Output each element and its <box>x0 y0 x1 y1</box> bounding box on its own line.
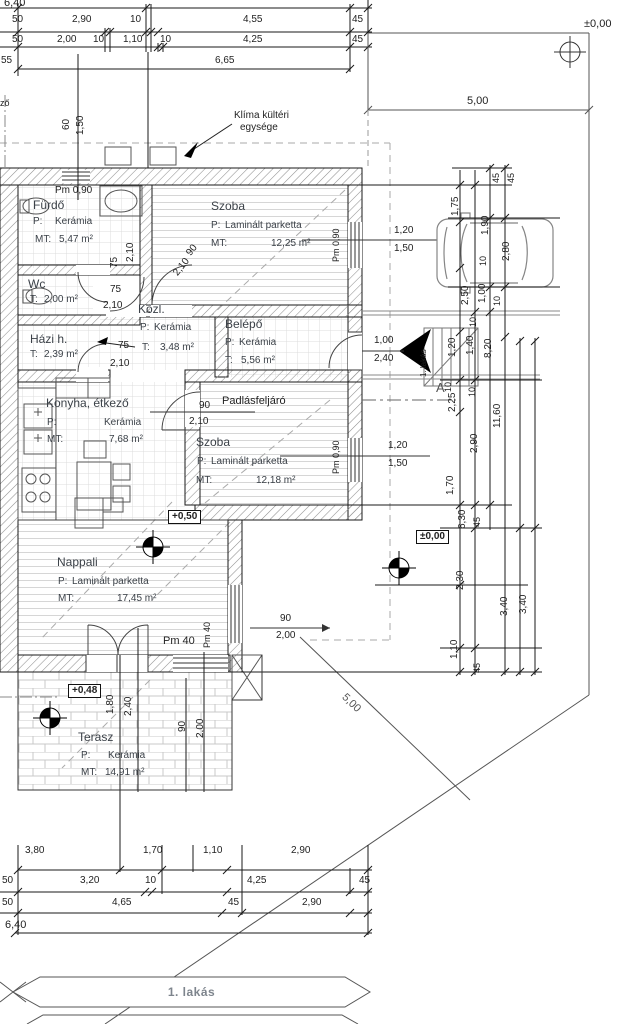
dim-label: 45 <box>473 663 482 673</box>
klima-label: Klíma kültéri <box>234 111 289 121</box>
room-area-prefix: MT: <box>58 594 74 604</box>
window-dim: 1,20 <box>388 441 407 451</box>
room-name: Nappali <box>57 556 98 568</box>
dim-bottom-total: 6,40 <box>5 920 26 931</box>
door-dim: 75 <box>110 285 121 295</box>
dim-label: 1,75 <box>451 197 461 216</box>
room-area-prefix: T: <box>142 343 150 353</box>
room-name: Szoba <box>196 436 230 448</box>
dim-top-total: 6,40 <box>4 0 25 9</box>
dim-label: 4,25 <box>247 876 266 886</box>
room-area-prefix: MT: <box>196 476 212 486</box>
door-dim: 1,00 <box>374 336 393 346</box>
door-dim: 2,10 <box>189 417 208 427</box>
dim-label: 2,90 <box>72 15 91 25</box>
dim-label: 45 <box>507 173 516 183</box>
room-name: Közl. <box>138 303 165 315</box>
dim-label: 10 <box>479 256 488 266</box>
room-floor: Laminált parketta <box>72 577 149 587</box>
dim-label: 10 <box>444 382 453 392</box>
room-floor-prefix: P: <box>47 418 56 428</box>
dim-label: 50 <box>12 35 23 45</box>
room-floor-prefix: P: <box>225 338 234 348</box>
door-dim: 75 <box>110 257 120 268</box>
dim-label: 10 <box>130 15 141 25</box>
room-area: 5,47 m² <box>59 235 93 245</box>
dim-label: 3,40 <box>519 595 529 614</box>
dim-label: 1,50 <box>76 116 86 135</box>
room-area: 12,18 m² <box>256 476 295 486</box>
dim-label: 6,30 <box>458 510 468 529</box>
room-area-prefix: T: <box>30 350 38 360</box>
room-floor: Kerámia <box>239 338 276 348</box>
terrace-dim: 2,00 <box>196 719 206 738</box>
room-area: 2,39 m² <box>44 350 78 360</box>
window-dim: 1,50 <box>388 459 407 469</box>
room-area: 2,00 m² <box>44 295 78 305</box>
parapet-label: Pm 0,90 <box>332 440 341 474</box>
dim-label: 2,50 <box>461 286 471 305</box>
dim-label: 2,90 <box>291 846 310 856</box>
room-floor-prefix: P: <box>33 217 42 227</box>
dim-label: 50 <box>2 876 13 886</box>
dim-label: 1,40 <box>466 336 476 355</box>
dim-label: 10 <box>468 387 477 397</box>
terrace-dim: 90 <box>178 721 188 732</box>
dim-label: 3,40 <box>500 597 510 616</box>
room-floor-prefix: P: <box>211 221 220 231</box>
dim-label: 11,60 <box>493 404 503 428</box>
dim-label: 4,25 <box>243 35 262 45</box>
dim-label: 2,00 <box>57 35 76 45</box>
window-dim: 90 <box>280 614 291 624</box>
plan-linework <box>0 0 626 1024</box>
room-name: Terasz <box>78 731 113 743</box>
unit-banner-label: 1. lakás <box>168 985 215 999</box>
dim-label: 3,80 <box>25 846 44 856</box>
door-dim: 90 <box>199 401 210 411</box>
room-area-prefix: T: <box>30 295 38 305</box>
cut-label-fragment: ző <box>0 99 10 108</box>
room-name: Fürdő <box>33 199 64 211</box>
dim-label: 55 <box>1 56 12 66</box>
dim-label: 50 <box>12 15 23 25</box>
room-area: 5,56 m² <box>241 356 275 366</box>
parapet-label: Pm 0,90 <box>332 228 341 262</box>
room-floor-prefix: P: <box>140 323 149 333</box>
room-area-prefix: MT: <box>211 239 227 249</box>
dim-label: 45 <box>492 173 501 183</box>
room-floor: Kerámia <box>108 751 145 761</box>
parapet-label: Pm 40 <box>203 622 212 648</box>
room-area-prefix: T: <box>225 356 233 366</box>
dim-label: 1,00 <box>478 284 488 303</box>
dim-label: 1,70 <box>446 476 456 495</box>
level-origin-top: ±0,00 <box>584 19 611 30</box>
dim-label: 1,10 <box>450 640 460 659</box>
dim-label: 45 <box>473 517 482 527</box>
parapet-label: Pm 40 <box>163 636 195 647</box>
door-dim: 2,10 <box>110 359 129 369</box>
window-dim: 1,50 <box>394 244 413 254</box>
level-nappali: +0,50 <box>168 510 201 524</box>
dim-label: 60 <box>62 119 72 130</box>
dim-label: 10 <box>469 317 478 327</box>
room-floor: Kerámia <box>104 418 141 428</box>
dim-label: 4,55 <box>243 15 262 25</box>
entry-unit-label: 1. lakás <box>420 349 428 377</box>
room-area: 3,48 m² <box>160 343 194 353</box>
floorplan-sheet: 6,40 50 2,90 10 4,55 45 50 2,00 10 1,10 … <box>0 0 626 1024</box>
dim-label: 2,30 <box>456 571 466 590</box>
dim-label: 10 <box>93 35 104 45</box>
room-name: Házi h. <box>30 333 67 345</box>
dim-label: 6,65 <box>215 56 234 66</box>
room-floor-prefix: P: <box>81 751 90 761</box>
door-dim: 75 <box>118 341 129 351</box>
door-dim: 2,10 <box>126 243 136 262</box>
dim-label: 1,10 <box>203 846 222 856</box>
dim-label: 45 <box>359 876 370 886</box>
dim-label: 1,70 <box>143 846 162 856</box>
dim-label: 1,10 <box>123 35 142 45</box>
window-dim: 1,20 <box>394 226 413 236</box>
padlas-label: Padlásfeljáró <box>222 396 286 407</box>
dim-label: 45 <box>352 15 363 25</box>
room-name: Wc <box>28 278 45 290</box>
room-name: Belépő <box>225 318 262 330</box>
room-area: 17,45 m² <box>117 594 156 604</box>
unit-banner: 1. lakás <box>13 977 370 1007</box>
dim-label: 3,20 <box>80 876 99 886</box>
door-dim: 2,40 <box>374 354 393 364</box>
car <box>437 213 553 293</box>
dim-label: 10 <box>160 35 171 45</box>
room-floor: Laminált parketta <box>225 221 302 231</box>
window-dim: 2,00 <box>276 631 295 641</box>
parapet-label: Pm 0,90 <box>55 186 92 196</box>
room-area-prefix: MT: <box>81 768 97 778</box>
dim-label: 1,90 <box>481 216 491 235</box>
dim-label: 1,20 <box>448 338 458 357</box>
dim-label: 4,65 <box>112 898 131 908</box>
room-floor: Laminált parketta <box>211 457 288 467</box>
dim-label: 8,20 <box>484 339 494 358</box>
dim-site-width: 5,00 <box>467 96 488 107</box>
dim-label: 2,90 <box>302 898 321 908</box>
klima-label: egysége <box>240 123 278 133</box>
room-name: Szoba <box>211 200 245 212</box>
room-area: 14,91 m² <box>105 768 144 778</box>
floor-textures <box>18 185 348 790</box>
room-floor: Kerámia <box>55 217 92 227</box>
dim-label: 45 <box>352 35 363 45</box>
terrace-dim: 2,40 <box>124 697 134 716</box>
terrace-dim: 1,80 <box>106 695 116 714</box>
room-floor-prefix: P: <box>58 577 67 587</box>
dim-label: 45 <box>228 898 239 908</box>
dim-label: 2,25 <box>448 393 458 412</box>
dim-label: 2,80 <box>502 242 512 261</box>
klima-arrow-icon <box>184 142 198 158</box>
level-terasz: +0,48 <box>68 684 101 698</box>
room-area-prefix: MT: <box>35 235 51 245</box>
room-floor-prefix: P: <box>197 457 206 467</box>
dim-label: 50 <box>2 898 13 908</box>
room-floor: Kerámia <box>154 323 191 333</box>
dim-label: 10 <box>145 876 156 886</box>
door-dim: 2,10 <box>103 301 122 311</box>
room-name: Konyha, étkező <box>46 397 129 409</box>
room-area: 12,25 m² <box>271 239 310 249</box>
room-area: 7,68 m² <box>109 435 143 445</box>
dim-label: 10 <box>493 296 502 306</box>
dim-label: 2,90 <box>470 434 480 453</box>
level-origin-mid: ±0,00 <box>416 530 449 544</box>
room-area-prefix: MT: <box>47 435 63 445</box>
